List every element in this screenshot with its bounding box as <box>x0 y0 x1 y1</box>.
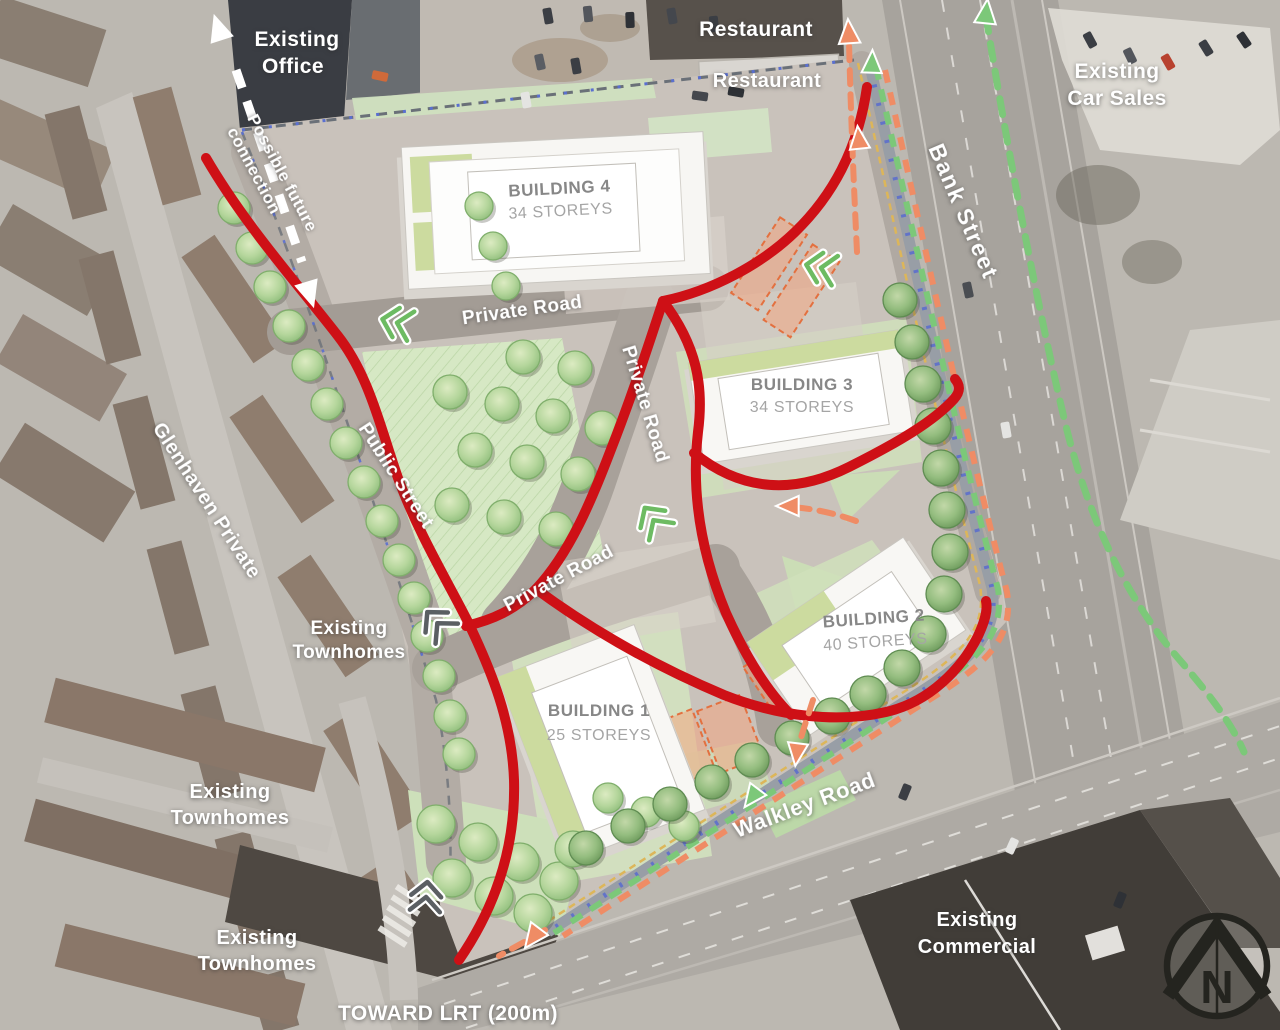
label-existing-office: Office <box>262 55 324 78</box>
car <box>583 6 594 23</box>
label-restaurant-lower: Restaurant <box>713 70 821 92</box>
label-existing-office: Existing <box>255 28 340 51</box>
label-existing-car-sales: Car Sales <box>1067 87 1166 110</box>
svg-text:34 STOREYS: 34 STOREYS <box>750 399 854 416</box>
label-existing-car-sales: Existing <box>1075 60 1160 83</box>
svg-text:25 STOREYS: 25 STOREYS <box>547 727 651 744</box>
label-toward-lrt: TOWARD LRT (200m) <box>338 1002 558 1025</box>
compass-n-label: N <box>1200 961 1233 1013</box>
north-compass: N <box>1167 916 1267 1016</box>
svg-text:BUILDING 1: BUILDING 1 <box>548 701 650 720</box>
label-existing-townhomes-mid: Townhomes <box>292 642 405 663</box>
label-existing-townhomes-west: Existing <box>190 781 271 803</box>
label-existing-townhomes-mid: Existing <box>310 618 387 639</box>
label-existing-townhomes-south: Existing <box>217 927 298 949</box>
label-existing-townhomes-west: Townhomes <box>171 807 290 829</box>
site-plan-map: Existing Office Possible future connecti… <box>0 0 1280 1030</box>
label-existing-townhomes-south: Townhomes <box>198 953 317 975</box>
label-existing-commercial: Commercial <box>918 936 1037 958</box>
site-plan-canvas: Existing Office Possible future connecti… <box>0 0 1280 1030</box>
label-existing-commercial: Existing <box>937 909 1018 931</box>
car <box>625 12 635 28</box>
label-restaurant-top: Restaurant <box>699 18 813 41</box>
svg-text:BUILDING 3: BUILDING 3 <box>751 375 853 394</box>
